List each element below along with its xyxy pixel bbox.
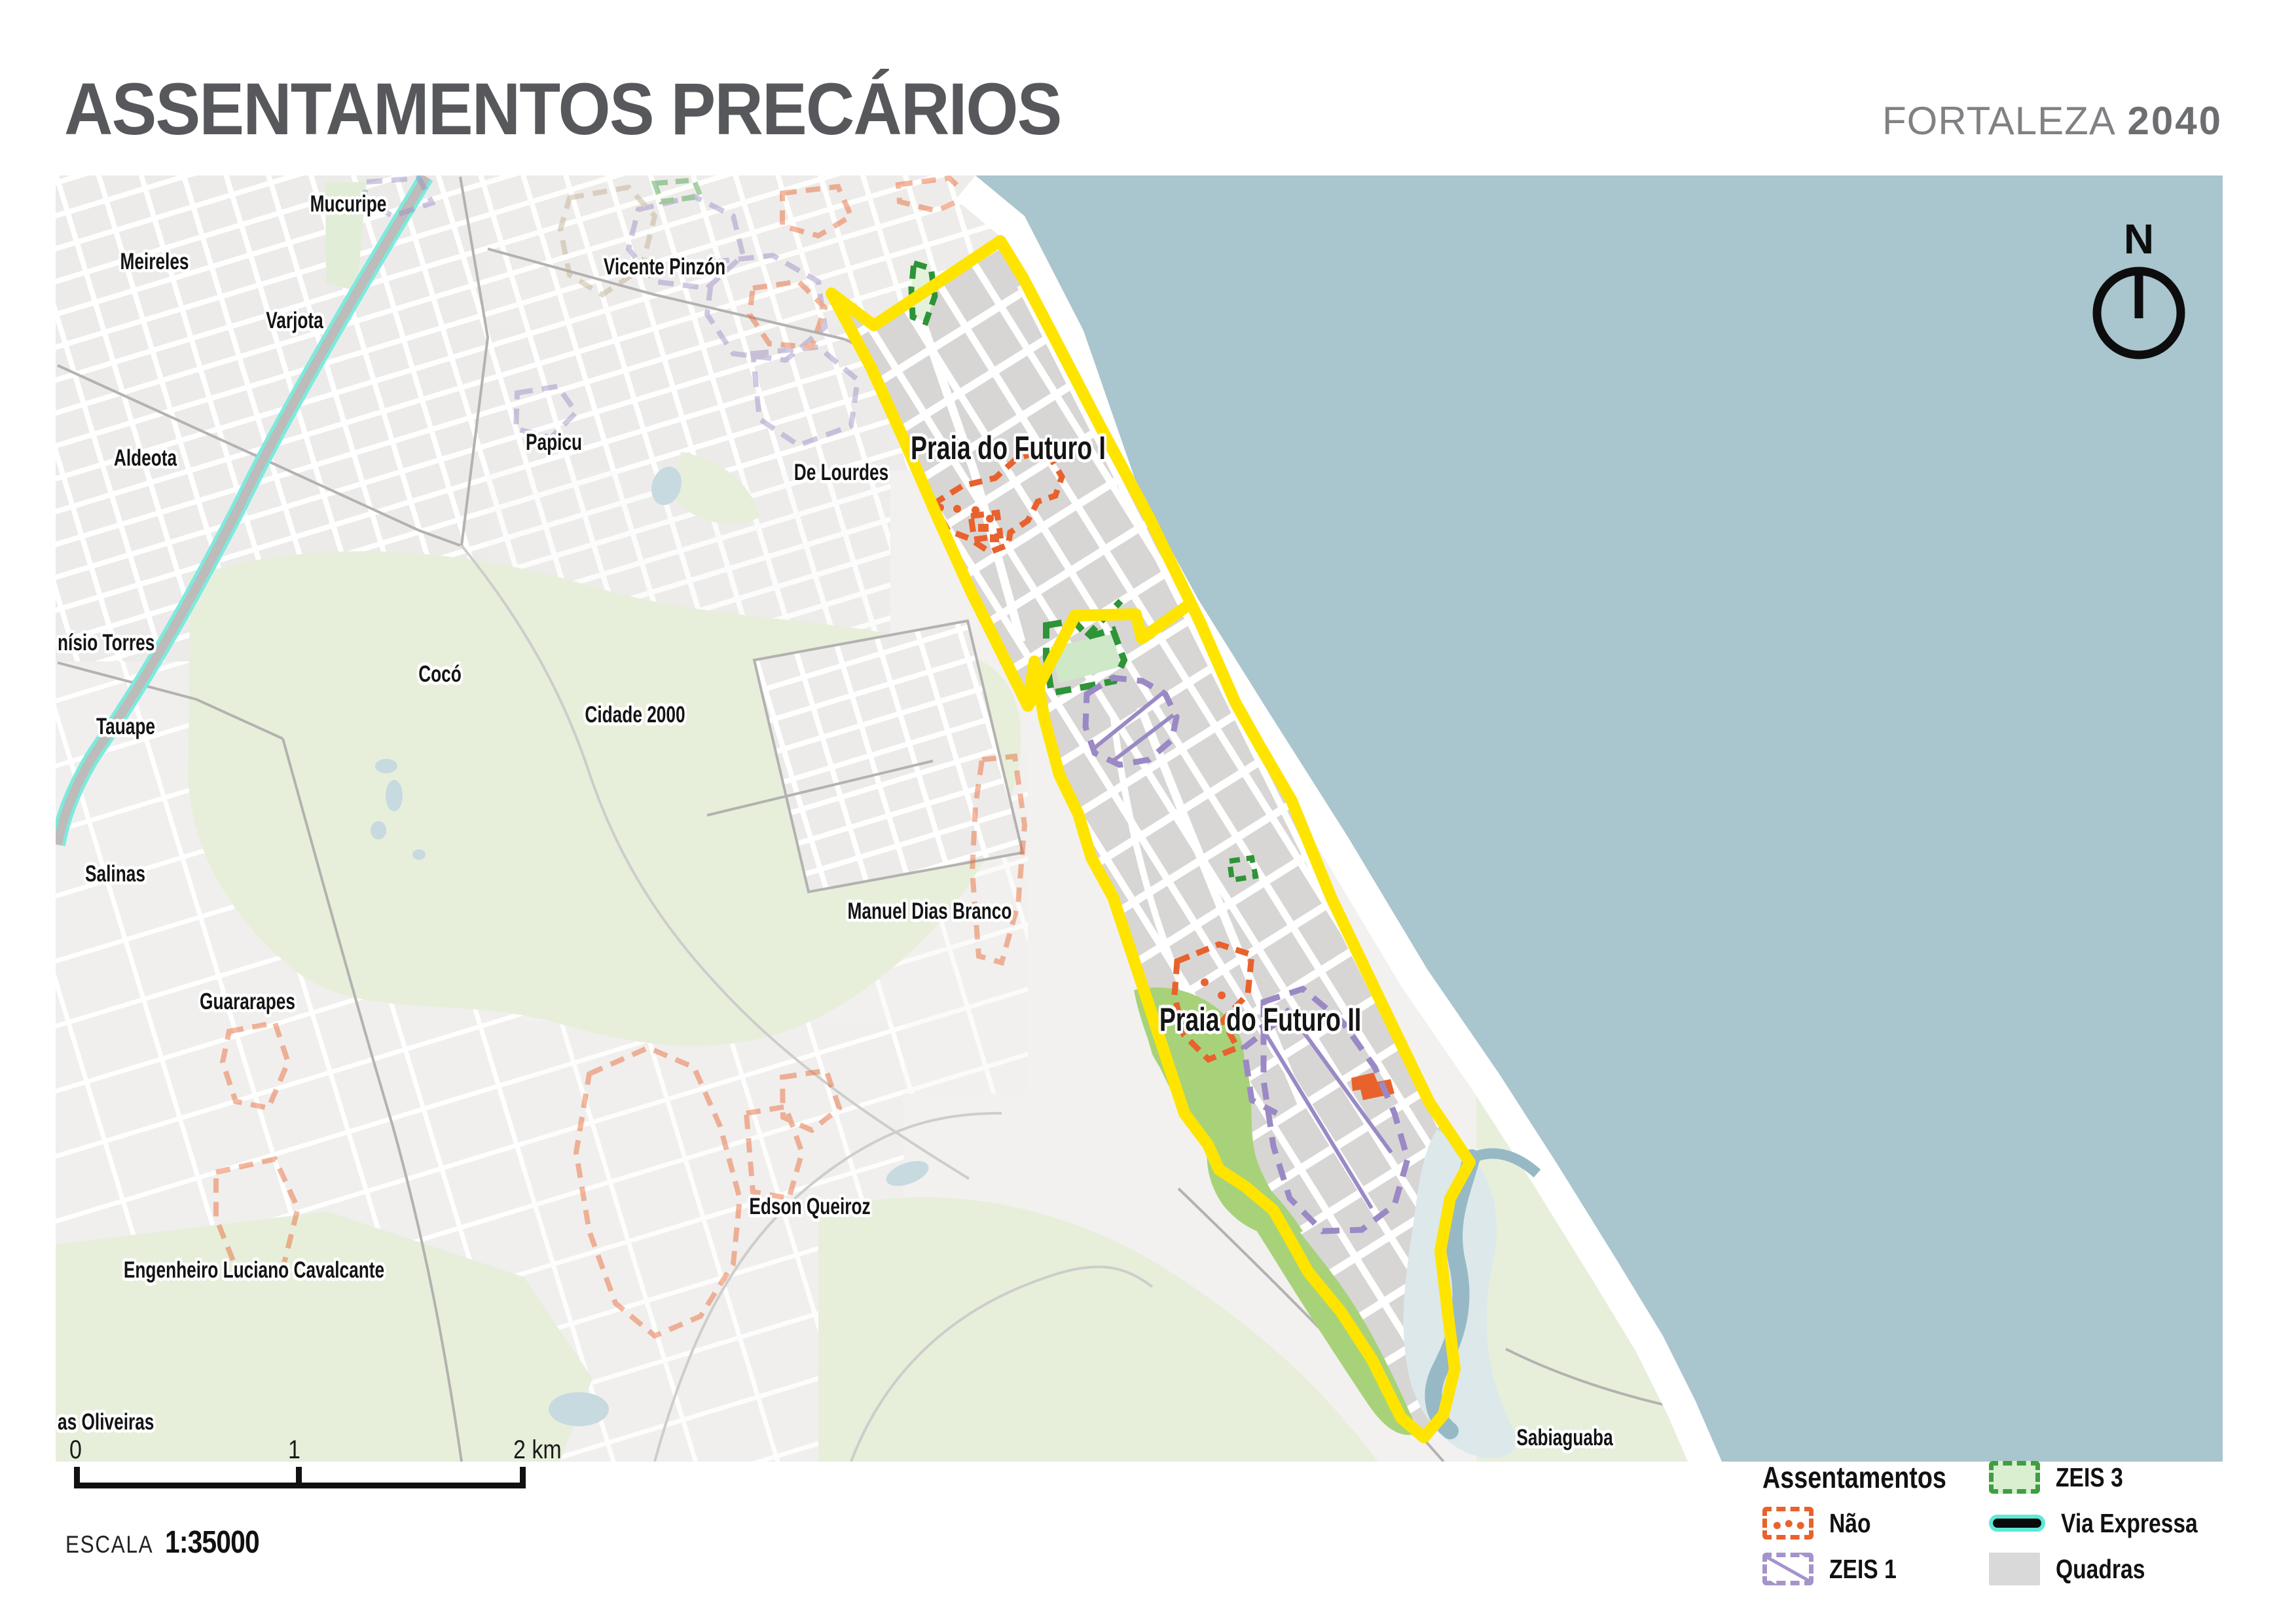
via-expressa-swatch-icon	[1989, 1515, 2045, 1532]
zeis1-swatch-icon	[1762, 1553, 1813, 1585]
legend-item-via-expressa: Via Expressa	[1989, 1502, 2264, 1544]
brand-logo: FORTALEZA 2040	[1882, 98, 2223, 143]
compass-north-label: N	[2124, 215, 2154, 263]
page-title: ASSENTAMENTOS PRECÁRIOS	[64, 67, 1061, 151]
legend-item-zeis3: ZEIS 3	[1989, 1456, 2264, 1498]
scale-tick-2: 2 km	[513, 1435, 562, 1465]
legend-item-label: Não	[1829, 1508, 1871, 1539]
scale-ratio: 1:35000	[165, 1524, 259, 1560]
legend-item-label: ZEIS 1	[1829, 1554, 1897, 1585]
brand-year: 2040	[2128, 99, 2223, 143]
legend-item-label: Via Expressa	[2061, 1508, 2198, 1539]
legend-item-quadras: Quadras	[1989, 1548, 2264, 1590]
zeis3-swatch-icon	[1989, 1461, 2040, 1494]
scale-bar: 0 1 2 km	[65, 1435, 589, 1514]
legend-item-label: Quadras	[2056, 1554, 2145, 1585]
nao-swatch-icon	[1762, 1507, 1813, 1540]
map-canvas	[0, 0, 2296, 1624]
scale-caption: ESCALA	[65, 1531, 153, 1559]
legend: Assentamentos Não ZEIS 1 ZEIS 3 Via Expr…	[1762, 1456, 2264, 1590]
legend-item-label: ZEIS 3	[2056, 1462, 2123, 1493]
legend-title: Assentamentos	[1762, 1456, 1923, 1498]
scale-tick-0: 0	[69, 1435, 82, 1465]
legend-item-nao: Não	[1762, 1502, 1959, 1544]
page: MucuripeVicente PinzónMeirelesVarjotaAld…	[0, 0, 2296, 1624]
scale-bar-line	[74, 1483, 526, 1488]
legend-item-zeis1: ZEIS 1	[1762, 1548, 1959, 1590]
quadras-swatch-icon	[1989, 1553, 2040, 1585]
scale-tick-1: 1	[288, 1435, 301, 1465]
brand-name: FORTALEZA	[1882, 99, 2116, 143]
